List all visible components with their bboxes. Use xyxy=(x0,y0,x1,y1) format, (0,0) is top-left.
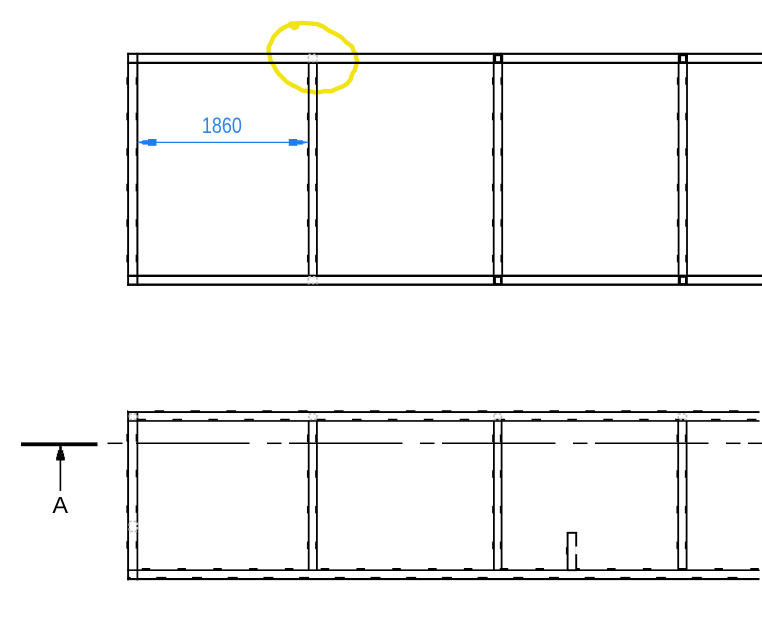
svg-text:1860: 1860 xyxy=(202,114,242,138)
svg-text:A: A xyxy=(52,492,68,518)
